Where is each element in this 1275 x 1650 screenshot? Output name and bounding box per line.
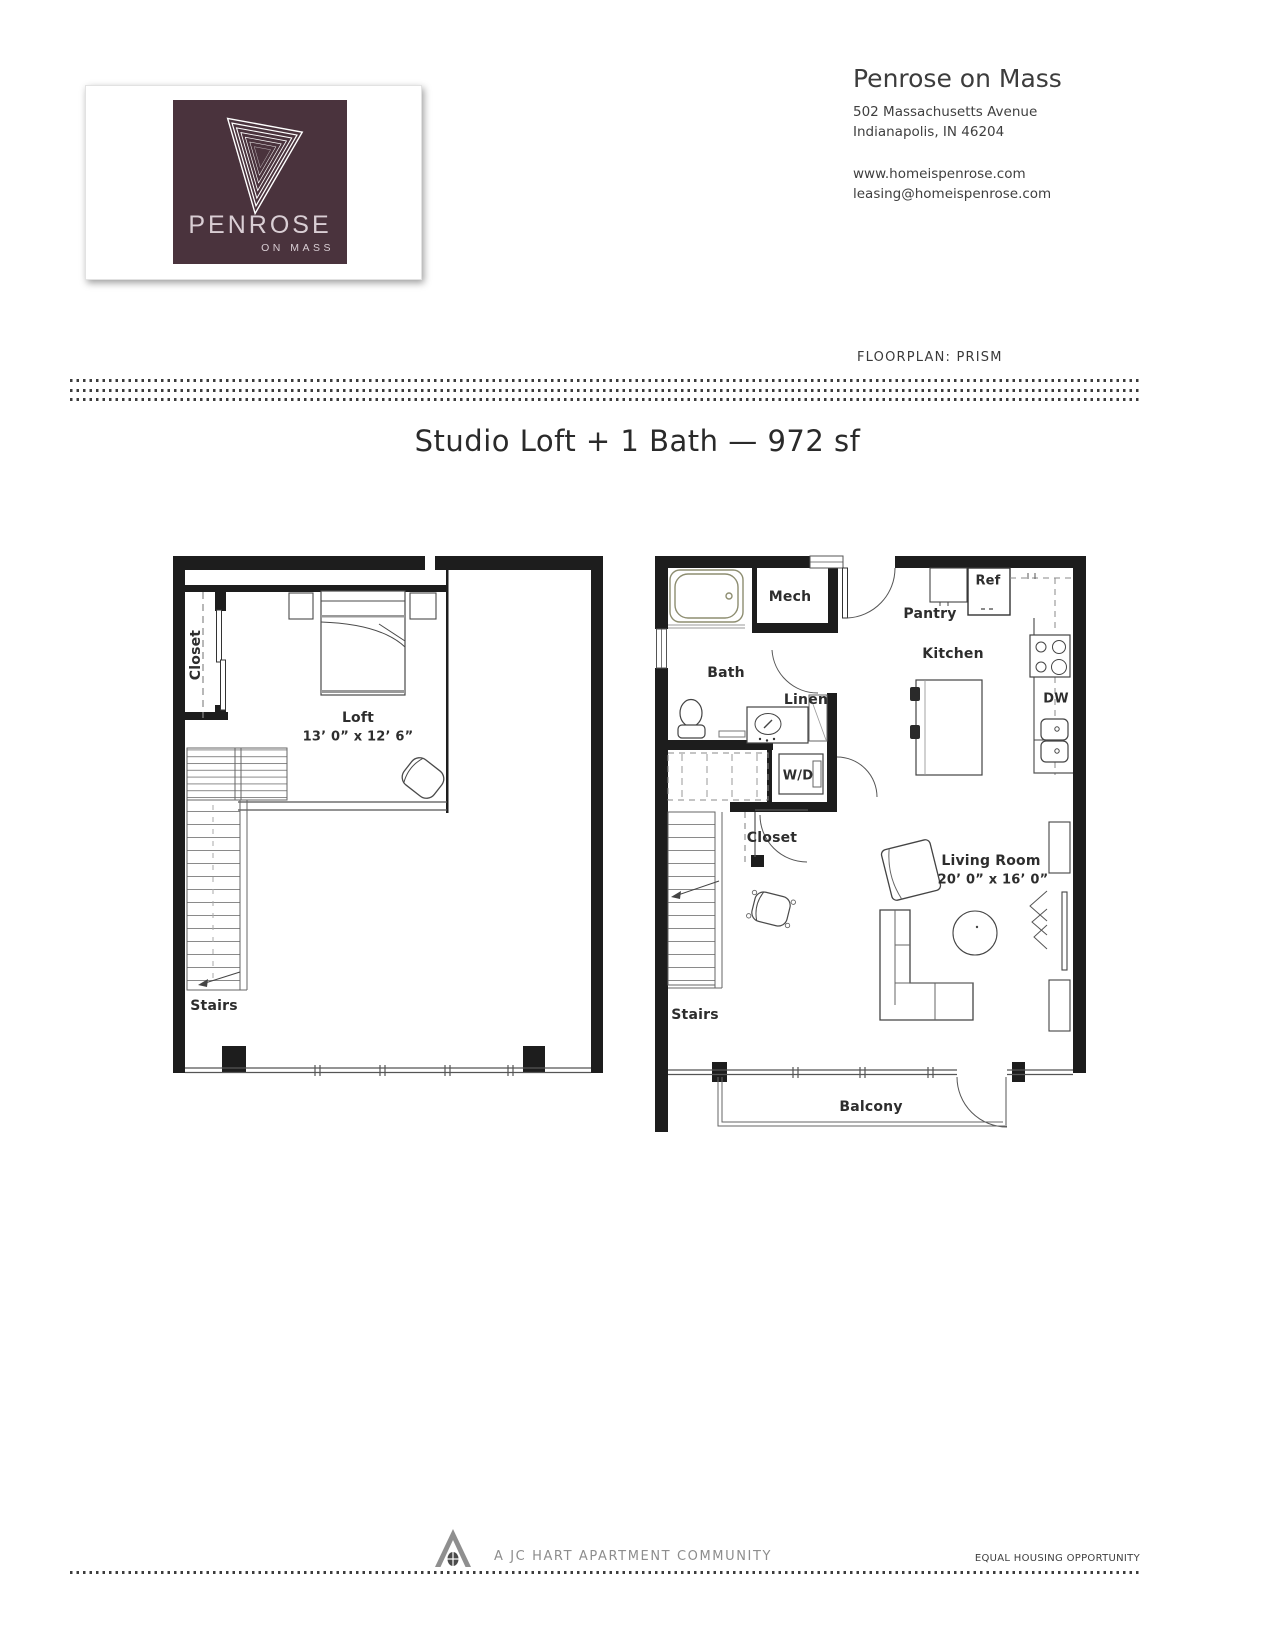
linen-label: Linen [784, 692, 828, 708]
bath-label: Bath [707, 665, 745, 681]
main-stairs-label: Stairs [671, 1007, 718, 1023]
kitchen-label: Kitchen [922, 646, 983, 662]
armchair [880, 839, 941, 902]
main-closet-label: Closet [747, 830, 797, 846]
loft-closet-label: Closet [188, 630, 204, 680]
nightstand-left [289, 593, 313, 619]
ref-label: Ref [975, 574, 1000, 589]
wall-gap [425, 556, 435, 570]
dw-label: DW [1043, 692, 1069, 707]
contact-block: Penrose on Mass 502 Massachusetts Avenue… [853, 64, 1062, 204]
loft-partition-wall [446, 570, 449, 813]
loft-dims-label: 13’ 0” x 12’ 6” [303, 730, 414, 745]
address-line2: Indianapolis, IN 46204 [853, 122, 1062, 142]
toilet [678, 700, 705, 739]
desk-chair [746, 889, 796, 929]
coffee-table [953, 911, 997, 955]
living-room-label: Living Room [941, 853, 1040, 869]
balcony-door [957, 1077, 1007, 1127]
website-text: www.homeispenrose.com [853, 164, 1062, 184]
penrose-logo: PENROSE ON MASS [173, 100, 347, 264]
entry-door [810, 556, 895, 618]
vanity-sink [747, 707, 808, 743]
loft-edge [238, 802, 447, 810]
cooktop [1030, 635, 1070, 677]
loft-stairs [187, 748, 287, 990]
tub-deck [668, 625, 745, 628]
main-walls [655, 556, 1086, 1132]
washer-dryer-label: W/D [783, 769, 813, 784]
loft-bed [321, 591, 405, 695]
nightstand-right [410, 593, 436, 619]
main-stairs [668, 753, 768, 988]
page-title: Studio Loft + 1 Bath — 972 sf [0, 424, 1275, 458]
kitchen-sink [1034, 719, 1068, 762]
email-text: leasing@homeispenrose.com [853, 184, 1062, 204]
living-room-dims-label: 20’ 0” x 16’ 0” [938, 873, 1049, 888]
penrose-triangle-icon [173, 100, 347, 222]
floorplan-page: PENROSE ON MASS Penrose on Mass 502 Mass… [0, 0, 1275, 1650]
logo-sub-text: ON MASS [261, 242, 334, 254]
loft-room-label: Loft [342, 710, 374, 726]
kitchen-island [910, 680, 982, 775]
divider-dotted-bottom [70, 1571, 1142, 1574]
loft-stairs-label: Stairs [190, 998, 237, 1014]
main-level-plan [645, 525, 1095, 1140]
pantry-cabinet [930, 568, 967, 606]
loft-chair [398, 754, 448, 803]
mech-label: Mech [769, 589, 812, 605]
floorplan-name-label: FLOORPLAN: PRISM [857, 350, 1003, 365]
logo-brand-text: PENROSE [173, 211, 347, 240]
divider-dotted-top [70, 379, 1142, 408]
bath-door-arc [772, 650, 818, 693]
pantry-label: Pantry [903, 606, 956, 622]
bathtub [670, 570, 743, 622]
bath-mat [719, 731, 745, 737]
bath-window [655, 629, 668, 668]
balcony-label: Balcony [839, 1099, 902, 1115]
equal-housing-text: EQUAL HOUSING OPPORTUNITY [975, 1553, 1140, 1564]
address-line1: 502 Massachusetts Avenue [853, 102, 1062, 122]
property-name: Penrose on Mass [853, 64, 1062, 93]
community-text: A JC HART APARTMENT COMMUNITY [494, 1549, 772, 1564]
penrose-logo-card: PENROSE ON MASS [85, 85, 422, 280]
jchart-house-icon [435, 1528, 471, 1572]
